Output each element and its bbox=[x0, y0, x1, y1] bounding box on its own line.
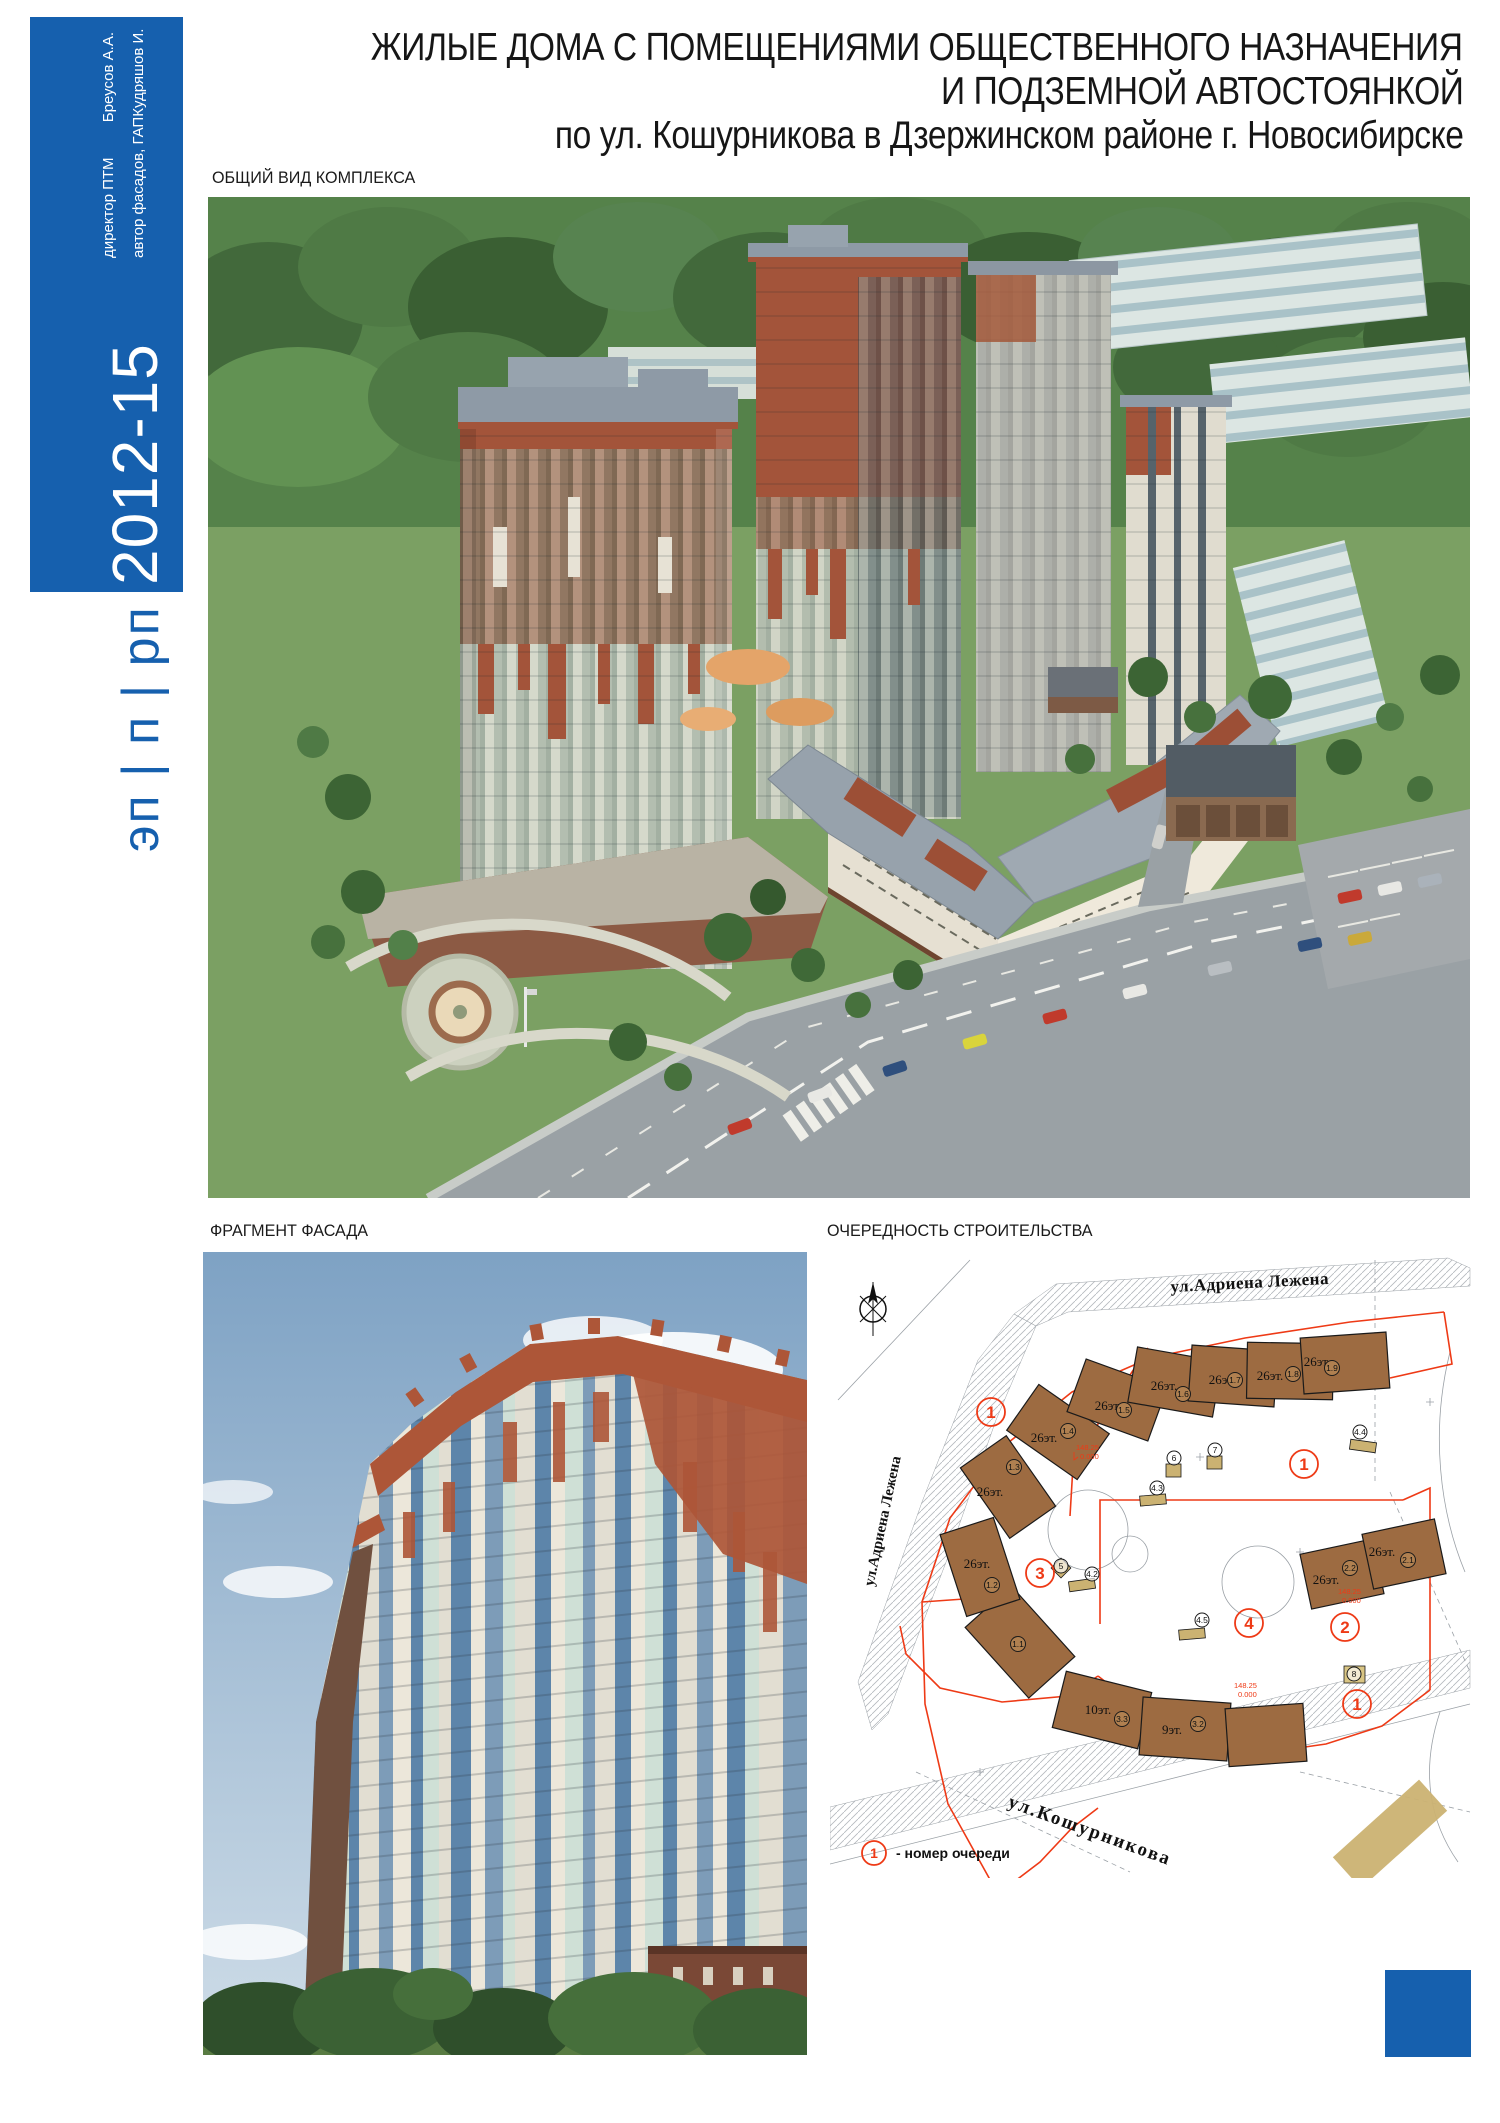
svg-text:1.5: 1.5 bbox=[1118, 1405, 1130, 1415]
svg-text:1.9: 1.9 bbox=[1326, 1363, 1338, 1373]
svg-text:1.4: 1.4 bbox=[1062, 1426, 1074, 1436]
svg-text:1.8: 1.8 bbox=[1287, 1369, 1299, 1379]
svg-text:1.6: 1.6 bbox=[1177, 1389, 1189, 1399]
overview-section-label: ОБЩИЙ ВИД КОМПЛЕКСА bbox=[212, 168, 426, 188]
title-line-1: ЖИЛЫЕ ДОМА С ПОМЕЩЕНИЯМИ ОБЩЕСТВЕННОГО Н… bbox=[371, 26, 1463, 70]
overview-render-svg bbox=[208, 197, 1470, 1198]
credit-name: Кудряшов И. bbox=[128, 29, 150, 117]
site-plan-svg: 26эт. 26эт. 26эт. 26эт. 26эт. 26эт. 26эт… bbox=[830, 1252, 1471, 1878]
svg-text:26эт.: 26эт. bbox=[1031, 1430, 1058, 1445]
svg-text:3.2: 3.2 bbox=[1192, 1719, 1204, 1729]
svg-text:1: 1 bbox=[1352, 1695, 1361, 1714]
svg-text:10эт.: 10эт. bbox=[1085, 1702, 1112, 1717]
svg-text:148.25: 148.25 bbox=[1076, 1443, 1099, 1452]
garage-building bbox=[1166, 745, 1296, 841]
svg-text:26эт.: 26эт. bbox=[1257, 1368, 1284, 1383]
svg-text:148.25: 148.25 bbox=[1338, 1587, 1361, 1596]
svg-text:9эт.: 9эт. bbox=[1162, 1722, 1182, 1737]
svg-text:4.5: 4.5 bbox=[1196, 1615, 1208, 1625]
svg-text:6: 6 bbox=[1172, 1453, 1177, 1463]
svg-text:26эт.: 26эт. bbox=[1313, 1572, 1340, 1587]
facade-render-svg bbox=[203, 1252, 807, 2055]
overview-render bbox=[208, 197, 1470, 1198]
svg-text:2: 2 bbox=[1340, 1618, 1349, 1637]
svg-text:4.2: 4.2 bbox=[1086, 1569, 1098, 1579]
phasing-site-plan: 26эт. 26эт. 26эт. 26эт. 26эт. 26эт. 26эт… bbox=[830, 1252, 1471, 1878]
svg-text:4: 4 bbox=[1244, 1614, 1254, 1633]
svg-text:2.1: 2.1 bbox=[1402, 1555, 1414, 1565]
facade-section-label: ФРАГМЕНТ ФАСАДА bbox=[210, 1221, 376, 1241]
svg-text:1.1: 1.1 bbox=[1012, 1639, 1024, 1649]
credit-role: директор ПТМ bbox=[98, 157, 120, 258]
stage-code: эп | п | рп bbox=[110, 594, 172, 852]
project-years: 2012-15 bbox=[100, 298, 170, 585]
svg-text:3.3: 3.3 bbox=[1116, 1714, 1128, 1724]
svg-text:7: 7 bbox=[1213, 1445, 1218, 1455]
svg-text:2.2: 2.2 bbox=[1344, 1563, 1356, 1573]
svg-text:3: 3 bbox=[1035, 1564, 1044, 1583]
svg-text:4.4: 4.4 bbox=[1354, 1427, 1366, 1437]
svg-text:26эт.: 26эт. bbox=[964, 1556, 991, 1571]
svg-text:1: 1 bbox=[986, 1403, 995, 1422]
title-line-2: И ПОДЗЕМНОЙ АВТОСТОЯНКОЙ bbox=[941, 70, 1463, 114]
facade-render bbox=[203, 1252, 807, 2055]
svg-text:5: 5 bbox=[1059, 1561, 1064, 1571]
svg-text:26эт.: 26эт. bbox=[1151, 1378, 1178, 1393]
corner-blue-square bbox=[1385, 1970, 1471, 2057]
credit-line-facade-author: автор фасадов, ГАП Кудряшов И. bbox=[128, 32, 150, 258]
kiosk-building bbox=[1048, 667, 1118, 713]
phasing-section-label: ОЧЕРЕДНОСТЬ СТРОИТЕЛЬСТВА bbox=[827, 1221, 1107, 1241]
svg-text:26эт.: 26эт. bbox=[977, 1484, 1004, 1499]
legend-text: - номер очереди bbox=[896, 1845, 1010, 1861]
svg-text:0.000: 0.000 bbox=[1238, 1690, 1257, 1699]
legend-number: 1 bbox=[870, 1845, 878, 1861]
svg-text:26эт.: 26эт. bbox=[1369, 1544, 1396, 1559]
tower-right-rear bbox=[748, 225, 968, 819]
svg-text:0.000: 0.000 bbox=[1342, 1596, 1361, 1605]
svg-text:1.2: 1.2 bbox=[986, 1580, 998, 1590]
page-title: ЖИЛЫЕ ДОМА С ПОМЕЩЕНИЯМИ ОБЩЕСТВЕННОГО Н… bbox=[193, 26, 1463, 158]
tower-narrow-right bbox=[1120, 395, 1232, 765]
svg-text:8: 8 bbox=[1352, 1669, 1357, 1679]
title-line-3: по ул. Кошурникова в Дзержинском районе … bbox=[554, 114, 1463, 158]
credit-role: автор фасадов, ГАП bbox=[128, 117, 150, 258]
svg-text:148.25: 148.25 bbox=[1234, 1681, 1257, 1690]
svg-text:4.3: 4.3 bbox=[1151, 1483, 1163, 1493]
svg-text:1.7: 1.7 bbox=[1229, 1375, 1241, 1385]
credit-name: Бреусов А.А. bbox=[98, 32, 120, 122]
credit-line-director: директор ПТМ Бреусов А.А. bbox=[98, 32, 120, 258]
presentation-board: директор ПТМ Бреусов А.А. автор фасадов,… bbox=[0, 0, 1500, 2123]
svg-text:0.000: 0.000 bbox=[1080, 1452, 1099, 1461]
svg-text:1: 1 bbox=[1299, 1455, 1308, 1474]
svg-text:1.3: 1.3 bbox=[1008, 1462, 1020, 1472]
